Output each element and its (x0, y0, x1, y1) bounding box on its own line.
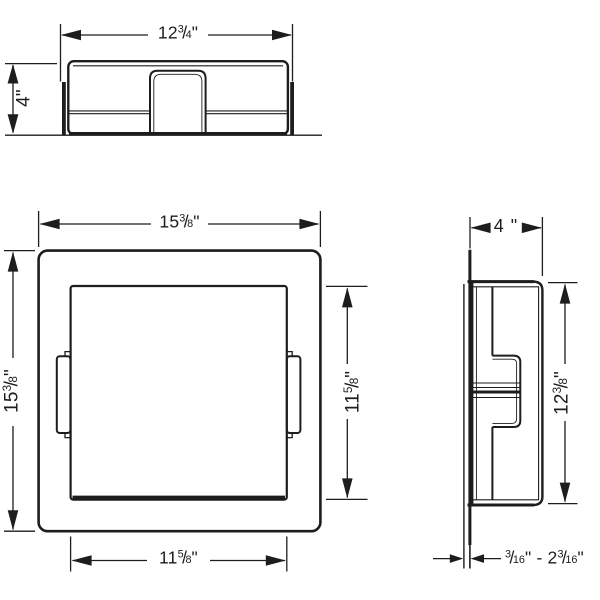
arrowhead-left (40, 219, 60, 230)
retaining-clip-right (287, 356, 301, 433)
arrowhead-down (8, 510, 19, 530)
dim-label-side-depth: 4 " (494, 217, 518, 235)
arrowhead-up (8, 64, 19, 84)
front-view (39, 251, 321, 532)
arrowhead-left (61, 30, 81, 41)
dim-label-top-depth: 4" (15, 89, 34, 107)
side-view (464, 250, 543, 569)
arrowhead-right (299, 219, 319, 230)
mounting-flange-left (62, 82, 66, 135)
arrowhead-left (471, 554, 485, 563)
arrowhead-right (266, 555, 286, 566)
top-view (33, 61, 322, 135)
grip-tab-outline (150, 71, 206, 134)
dim-tile-thickness-range (433, 554, 501, 563)
niche-body-outline (68, 61, 288, 134)
dim-label-front-outer-height: 153/8" (2, 369, 21, 413)
arrowhead-left (72, 555, 92, 566)
arrowhead-left (471, 223, 491, 234)
technical-drawing: 123/4" 4" 153/8" 153/8" 115/8" 115/8" 4 … (0, 0, 600, 600)
outer-frame-outline (39, 251, 321, 532)
arrowhead-right (450, 554, 464, 563)
arrowhead-up (560, 284, 571, 304)
inner-niche-opening (71, 286, 287, 500)
retaining-clip-left (57, 356, 71, 433)
dim-label-front-inner-width: 115/8" (159, 549, 198, 567)
arrowhead-down (8, 114, 19, 134)
dim-label-front-outer-width: 153/8" (159, 213, 199, 231)
arrowhead-right (272, 30, 292, 41)
dim-label-side-inner-height: 123/8" (552, 371, 571, 415)
arrowhead-up (342, 287, 353, 307)
arrowhead-down (342, 478, 353, 498)
grip-tab-inner-line (154, 74, 202, 134)
dim-label-front-inner-height: 115/8" (343, 370, 362, 412)
dim-label-tile-thickness-range: 3/16" - 23/16" (505, 549, 584, 567)
dim-label-top-width: 123/4" (158, 24, 198, 42)
mounting-flange-right (290, 82, 294, 135)
arrowhead-up (8, 252, 19, 272)
arrowhead-down (560, 483, 571, 503)
drawing-linework (0, 0, 600, 600)
arrowhead-right (522, 223, 542, 234)
